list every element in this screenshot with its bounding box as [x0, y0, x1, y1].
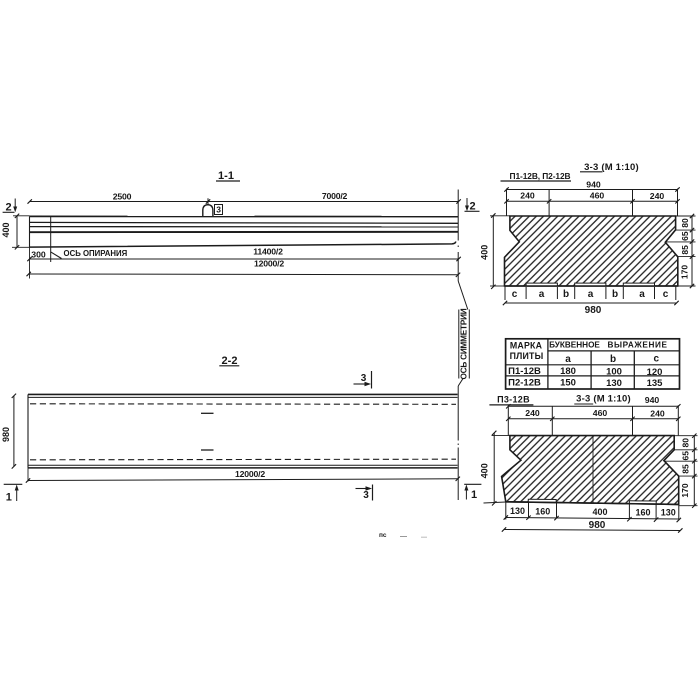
svg-text:2500: 2500	[113, 192, 132, 202]
svg-text:b: b	[610, 354, 616, 365]
svg-text:460: 460	[590, 191, 605, 201]
svg-text:П2-12В: П2-12В	[508, 377, 541, 388]
svg-text:80: 80	[680, 218, 690, 228]
svg-text:2: 2	[5, 202, 11, 214]
svg-text:980: 980	[1, 427, 11, 442]
svg-text:c: c	[512, 289, 518, 300]
svg-text:a: a	[639, 289, 645, 300]
svg-text:1: 1	[6, 492, 12, 504]
svg-text:160: 160	[535, 506, 550, 516]
svg-text:a: a	[588, 289, 594, 300]
svg-text:85: 85	[680, 245, 690, 255]
svg-text:пс: пс	[379, 532, 387, 539]
svg-text:160: 160	[635, 507, 650, 517]
svg-text:170: 170	[680, 483, 690, 497]
svg-text:65: 65	[680, 231, 690, 241]
svg-text:170: 170	[680, 265, 690, 279]
svg-text:c: c	[663, 289, 669, 300]
svg-text:150: 150	[560, 377, 576, 388]
svg-text:П3-12В: П3-12В	[497, 394, 530, 404]
svg-text:ОСЬ ОПИРАНИЯ: ОСЬ ОПИРАНИЯ	[64, 249, 128, 258]
svg-text:1-1: 1-1	[218, 170, 234, 182]
svg-text:11400/2: 11400/2	[253, 247, 283, 257]
svg-text:a: a	[565, 354, 571, 365]
svg-text:c: c	[654, 353, 660, 364]
svg-text:980: 980	[589, 520, 606, 531]
svg-text:240: 240	[650, 409, 665, 419]
svg-text:400: 400	[1, 222, 11, 237]
svg-text:980: 980	[585, 305, 602, 316]
svg-text:12000/2: 12000/2	[254, 259, 284, 269]
svg-text:7000/2: 7000/2	[322, 191, 348, 201]
svg-text:135: 135	[647, 378, 664, 389]
svg-text:400: 400	[480, 245, 490, 260]
svg-text:940: 940	[645, 395, 660, 405]
svg-text:130: 130	[510, 506, 525, 516]
svg-text:940: 940	[586, 180, 601, 190]
svg-text:П1-12В, П2-12В: П1-12В, П2-12В	[510, 171, 571, 181]
svg-text:b: b	[612, 289, 618, 300]
svg-text:130: 130	[606, 378, 622, 389]
svg-text:ВЫРАЖЕНИЕ: ВЫРАЖЕНИЕ	[607, 341, 667, 350]
svg-text:400: 400	[592, 507, 607, 517]
svg-text:85: 85	[680, 464, 690, 474]
svg-text:300: 300	[31, 250, 46, 260]
svg-text:100: 100	[606, 367, 622, 378]
svg-text:80: 80	[680, 438, 690, 448]
svg-text:3-3 (М 1:10): 3-3 (М 1:10)	[576, 393, 631, 404]
svg-text:130: 130	[661, 508, 676, 518]
svg-text:400: 400	[479, 463, 489, 478]
svg-text:3: 3	[363, 490, 369, 501]
svg-text:МАРКА: МАРКА	[510, 340, 543, 350]
svg-text:12000/2: 12000/2	[235, 469, 265, 479]
svg-text:2: 2	[469, 201, 475, 213]
svg-text:240: 240	[520, 191, 535, 201]
svg-text:120: 120	[647, 367, 663, 378]
svg-text:1: 1	[471, 489, 477, 501]
svg-text:3: 3	[216, 204, 221, 214]
svg-text:ПЛИТЫ: ПЛИТЫ	[510, 351, 544, 361]
svg-text:b: b	[563, 289, 569, 300]
svg-text:240: 240	[525, 408, 540, 418]
svg-text:П1-12В: П1-12В	[508, 366, 541, 377]
svg-text:БУКВЕННОЕ: БУКВЕННОЕ	[549, 341, 600, 350]
svg-text:460: 460	[593, 408, 608, 418]
svg-text:240: 240	[650, 191, 665, 201]
svg-text:a: a	[539, 289, 545, 300]
svg-text:ОСЬ СИММЕТРИИ: ОСЬ СИММЕТРИИ	[460, 308, 469, 379]
svg-text:65: 65	[680, 451, 690, 461]
svg-text:180: 180	[560, 366, 576, 377]
